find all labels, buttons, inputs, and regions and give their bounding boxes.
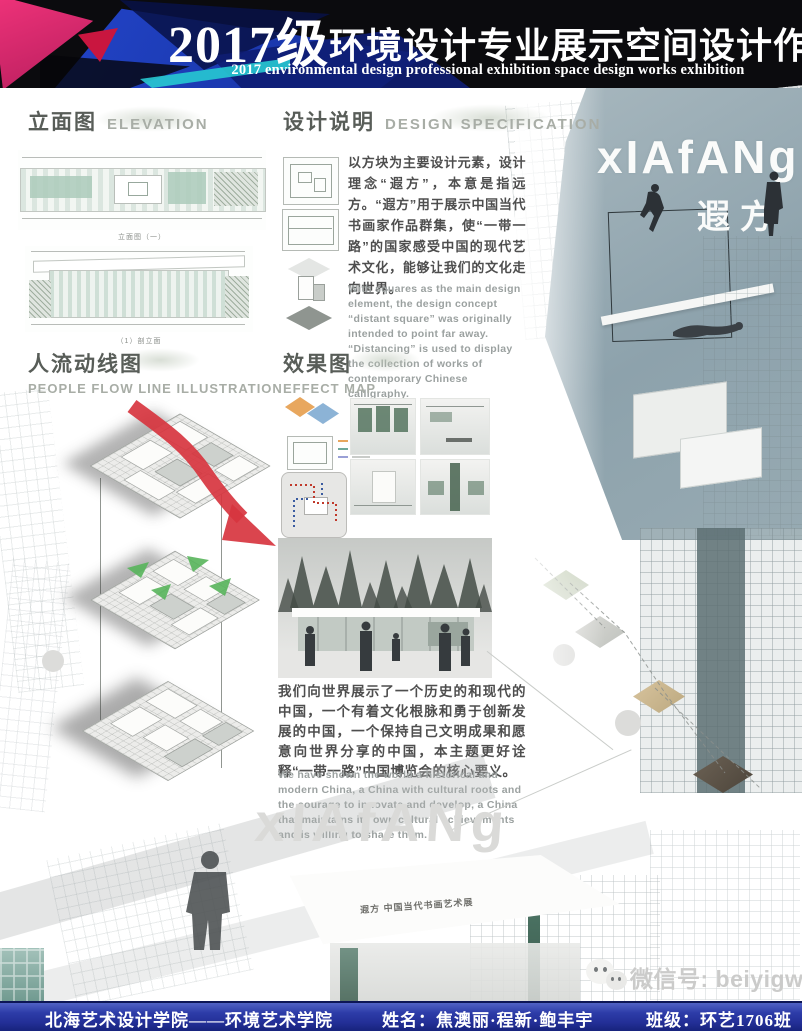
footer-class: 班级：环艺1706班 xyxy=(646,1006,792,1031)
elevation-drawing-2 xyxy=(25,246,253,332)
pavilion-render xyxy=(278,538,492,678)
poster-title-cn: 环境设计专业展示空间设计作品展 xyxy=(329,25,802,66)
design-spec-axon-sketch xyxy=(280,258,340,332)
render-thumbnail xyxy=(350,398,416,455)
effect-render-grid xyxy=(350,398,490,518)
elevation-drawing-1 xyxy=(18,150,266,230)
main-render: xIAfANg 遐方 xyxy=(515,88,802,833)
flow-axon-2 xyxy=(95,540,255,660)
bottom-silhouette xyxy=(180,848,240,953)
effect-plan-diagram xyxy=(287,436,333,470)
design-spec-plan-1 xyxy=(283,157,339,205)
footer-names: 姓名：焦澳丽·程新·鲍丰宇 xyxy=(382,1006,593,1031)
flow-axon-1 xyxy=(95,398,265,533)
silhouette-climber xyxy=(640,184,664,232)
effect-axon-diagram xyxy=(283,395,343,435)
flow-title-cn: 人流动线图 xyxy=(28,353,143,376)
flow-axon-3 xyxy=(85,668,250,793)
design-spec-title-en: DESIGN SPECIFICATION xyxy=(385,116,601,133)
render-thumbnail xyxy=(350,459,416,515)
render-fade xyxy=(515,88,605,833)
elevation-caption-1: 立面图（一） xyxy=(18,232,266,242)
section-effect-heading: 效果图 EFFECT MAP xyxy=(283,348,376,396)
wechat-badge: 微信号: beiyigw xyxy=(586,954,798,1000)
exhibition-poster: 2017级环境设计专业展示空间设计作品展 2017 environmental … xyxy=(0,0,802,1031)
design-spec-plan-2 xyxy=(282,209,339,251)
header: 2017级环境设计专业展示空间设计作品展 2017 environmental … xyxy=(0,0,802,88)
footer: 北海艺术设计学院——环境艺术学院 姓名：焦澳丽·程新·鲍丰宇 班级：环艺1706… xyxy=(0,1001,802,1031)
section-elevation-heading: 立面图ELEVATION xyxy=(28,106,209,136)
wechat-icon xyxy=(586,957,630,997)
footer-school: 北海艺术设计学院——环境艺术学院 xyxy=(45,1006,333,1031)
collage-teal-corner xyxy=(0,948,44,1003)
design-spec-title-cn: 设计说明 xyxy=(283,111,375,134)
collage-teal-column xyxy=(340,948,358,1003)
flow-arrows-green xyxy=(91,534,261,654)
bottom-render-base xyxy=(330,943,580,1003)
effect-title-cn: 效果图 xyxy=(283,353,352,376)
wechat-label: 微信号: beiyigw xyxy=(630,960,802,994)
section-design-spec-heading: 设计说明DESIGN SPECIFICATION xyxy=(283,106,601,136)
render-thumbnail xyxy=(420,459,490,515)
effect-paragraph-cn: 我们向世界展示了一个历史的和现代的中国，一个有着文化根脉和勇于创新发展的中国，一… xyxy=(278,682,526,782)
elevation-title-en: ELEVATION xyxy=(107,116,209,133)
effect-title-en: EFFECT MAP xyxy=(283,381,376,396)
flow-dot-1 xyxy=(42,650,64,672)
brand-watermark: xIAfANg xyxy=(253,792,512,854)
poster-subtitle-en: 2017 environmental design professional e… xyxy=(180,62,796,79)
silhouette-woman xyxy=(764,172,783,237)
elevation-title-cn: 立面图 xyxy=(28,111,97,134)
design-spec-paragraph-cn: 以方块为主要设计元素，设计理念“遐方”，本意是指远方。“遐方”用于展示中国当代书… xyxy=(348,152,526,299)
elevation-caption-2: （1）剖立面 xyxy=(25,336,253,346)
effect-circulation-plan xyxy=(281,472,347,538)
silhouette-swimmer xyxy=(673,322,743,338)
render-thumbnail xyxy=(420,398,490,455)
